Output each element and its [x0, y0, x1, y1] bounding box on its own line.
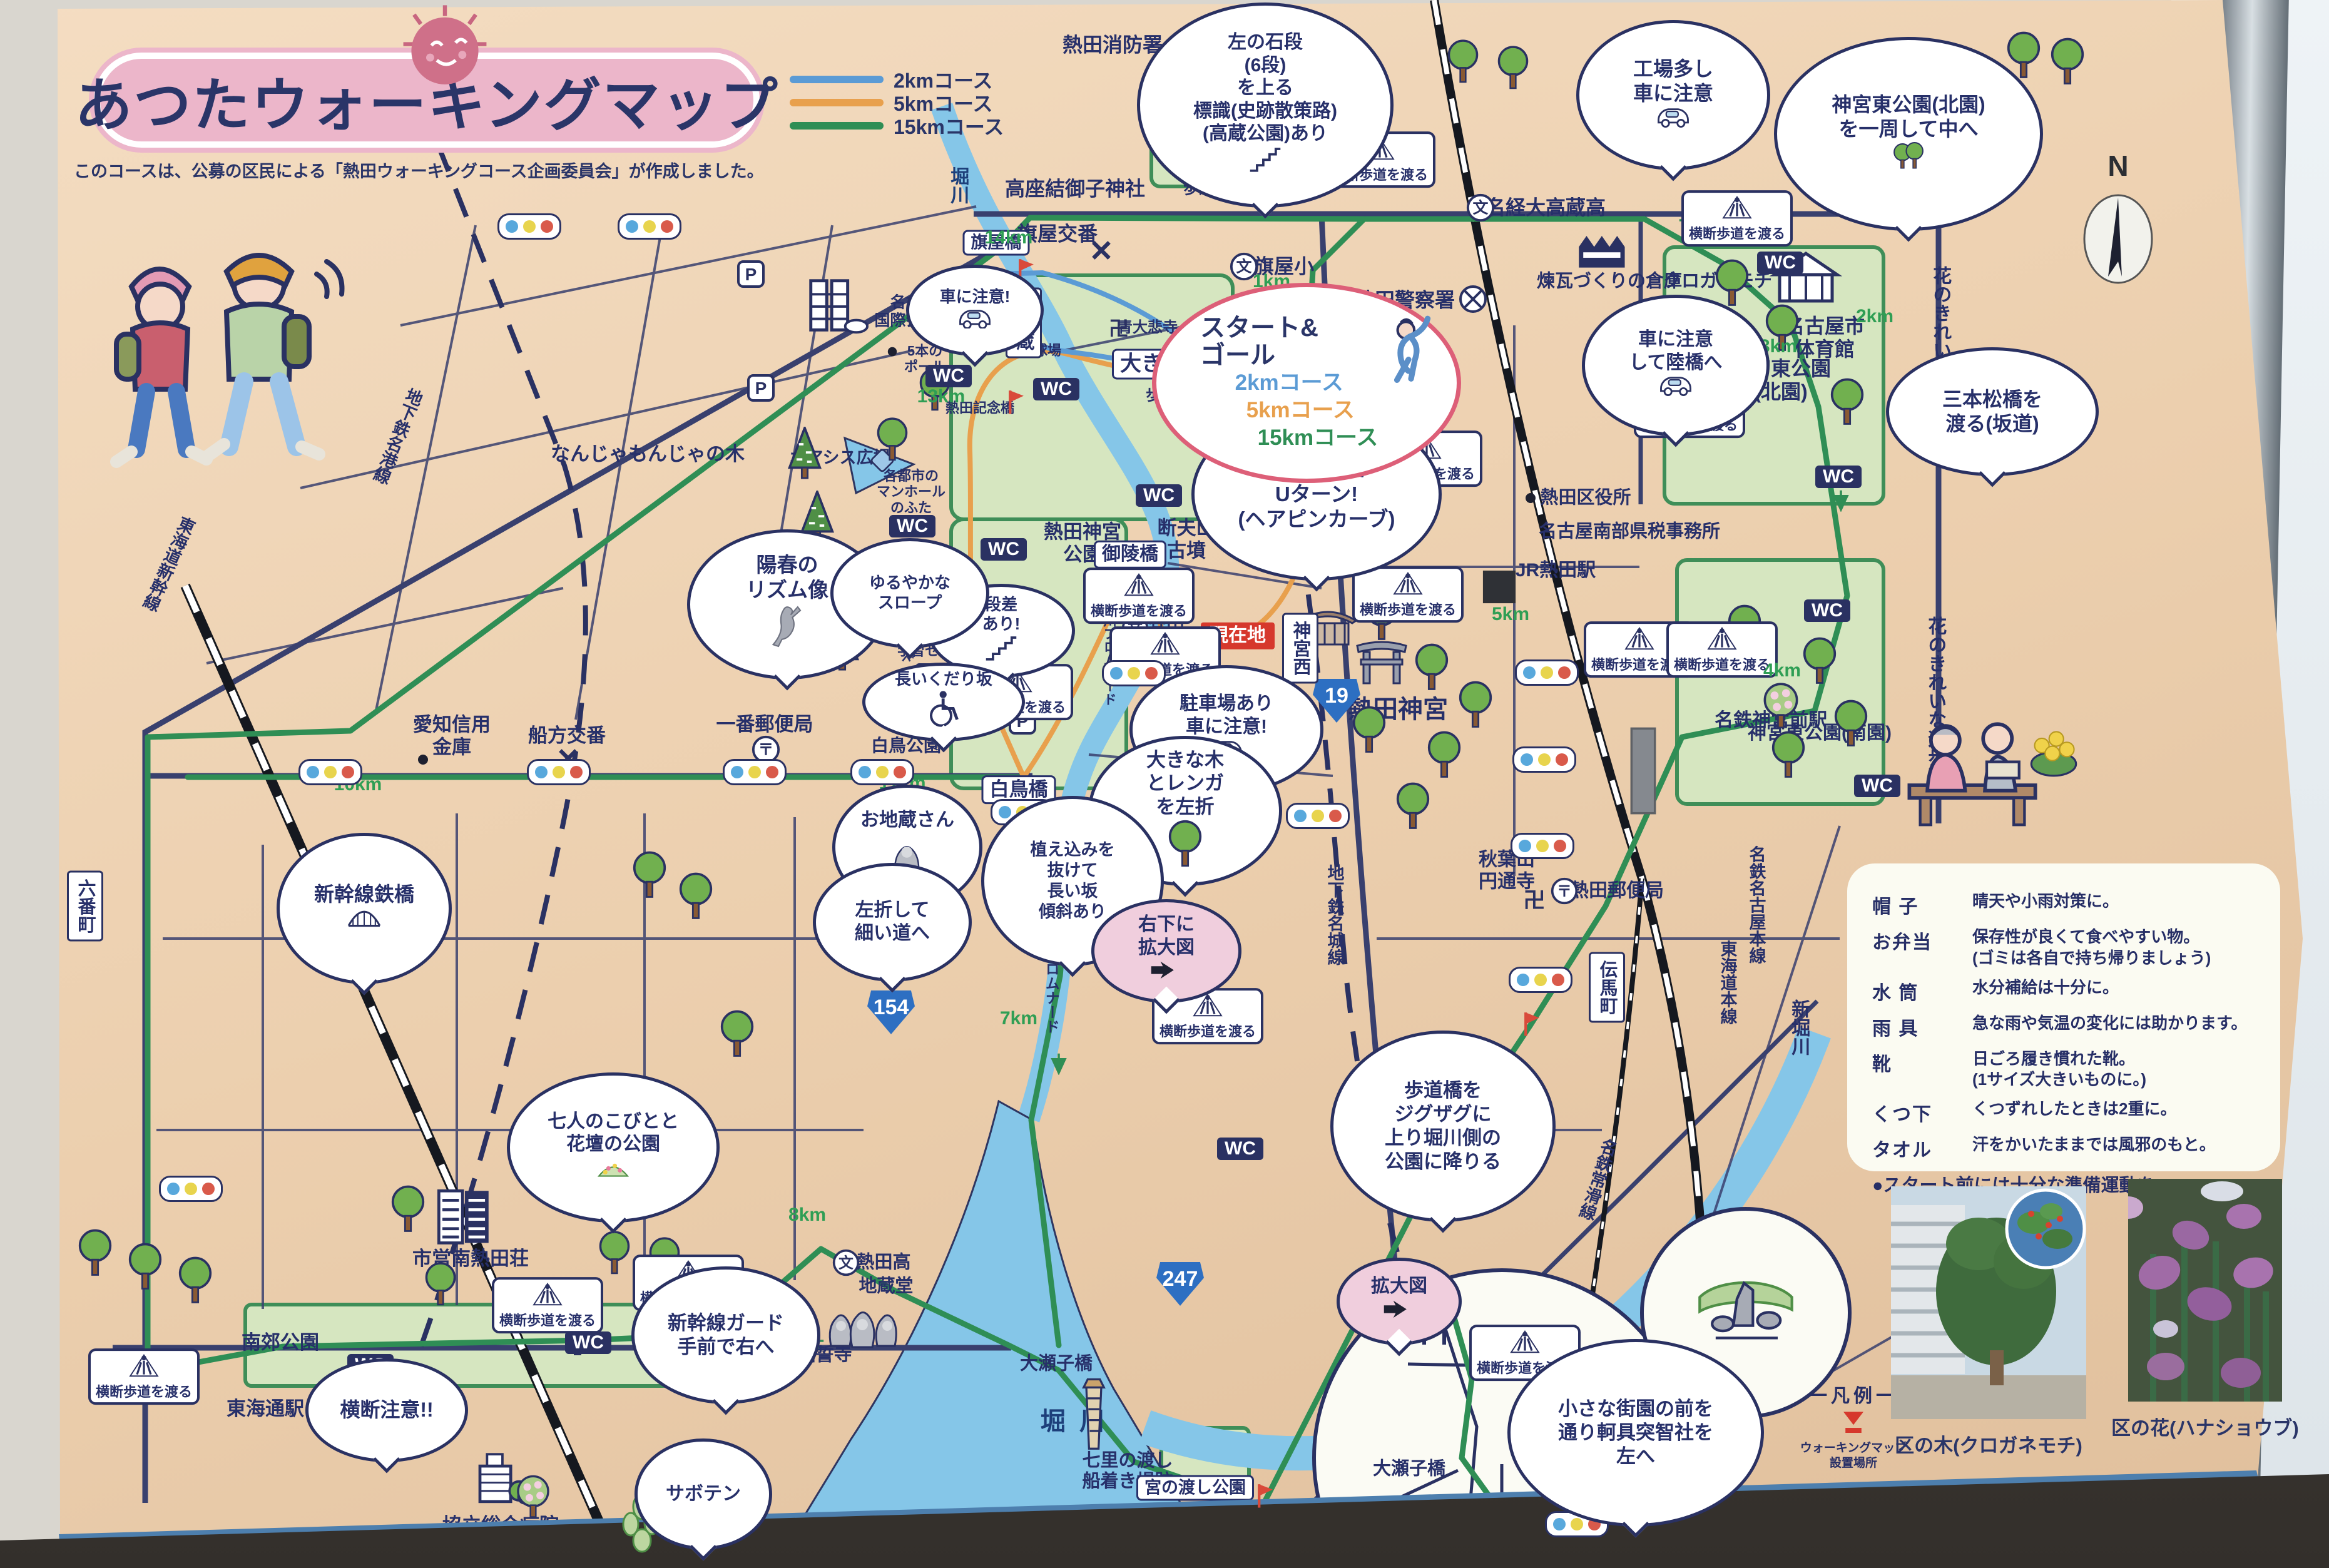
wc-badge: WC [1804, 599, 1850, 622]
crosswalk-icon [126, 1353, 162, 1381]
speech-bubble: 長いくだり坂 [862, 663, 1025, 741]
bubble-tail [879, 965, 906, 993]
bubble-tail [1059, 950, 1086, 977]
bubble-text: サボテン [666, 1483, 741, 1506]
svg-text:文: 文 [1473, 199, 1489, 217]
tip-term: 雨 具 [1872, 1013, 1972, 1041]
flag-icon [1006, 389, 1027, 415]
school-icon: 文 [1465, 193, 1496, 223]
svg-text:〒: 〒 [1557, 883, 1572, 900]
place-label: 名古屋南部県税事務所 [1539, 521, 1720, 542]
crosswalk-icon [1719, 195, 1755, 223]
bubble-text: 歩道橋を ジグザグに 上り堀川側の 公園に降りる [1385, 1079, 1501, 1173]
tower-icon [1070, 1378, 1118, 1452]
bubble-text: 右下に 拡大図 [1138, 914, 1195, 959]
tree-icon [1771, 730, 1806, 779]
place-label: 御陵橋 [1094, 541, 1166, 569]
place-label: 名経大高蔵高 [1486, 196, 1606, 220]
place-label: 高座結御子神社 [1005, 178, 1145, 201]
bubble-text: 車に注意 して陸橋へ [1629, 328, 1722, 374]
tip-row: 帽 子晴天や小雨対策に。 [1872, 891, 2255, 919]
tree-icon [78, 1228, 113, 1277]
traffic-light-icon [527, 759, 591, 785]
place-label: 一番郵便局 [716, 713, 813, 736]
speech-bubble: 神宮東公園(北園) を一周して中へ [1774, 37, 2043, 231]
bubble-tail [712, 1388, 740, 1415]
manji-icon: 卍 [1521, 886, 1548, 914]
flowerbed-icon [596, 1156, 631, 1184]
place-label: 煉瓦づくりの倉庫 [1537, 271, 1682, 292]
km-marker: 2km [1856, 306, 1893, 327]
tree-icon [2050, 37, 2085, 86]
tip-desc: 保存性が良くて食べやすい物。 (ゴミは各自で持ち帰りましょう) [1972, 927, 2255, 969]
bubble-text: 左折して 細い道へ [855, 899, 930, 945]
tree-icon [1427, 730, 1462, 779]
crossing-sign-text: 横断歩道を渡る [1689, 223, 1785, 243]
platform-icon [1630, 727, 1656, 815]
km-marker: 4km [1763, 660, 1801, 681]
tree-icon [720, 1009, 755, 1058]
crossing-sign-text: 横断歩道を渡る [96, 1381, 192, 1401]
bubble-text: 神宮東公園(北園) を一周して中へ [1832, 93, 1985, 141]
conference-icon [802, 276, 870, 335]
road-sign: 六番町 [67, 871, 103, 942]
bubble-tail [1979, 460, 2006, 487]
svg-text:〒: 〒 [758, 741, 774, 759]
speech-bubble: 横断注意!! [305, 1358, 468, 1462]
speech-bubble: 歩道橋を ジグザグに 上り堀川側の 公園に降りる [1330, 1031, 1556, 1222]
start-goal-course: 2kmコース [1235, 369, 1379, 397]
place-label: 各都市の マンホール のふた [877, 468, 945, 516]
crosswalk-icon [1507, 1330, 1543, 1357]
school-icon: 文 [832, 1248, 860, 1277]
tip-desc: 水分補給は十分に。 [1972, 977, 2255, 1005]
tip-desc: 汗をかいたままでは風邪のもと。 [1972, 1134, 2255, 1162]
bubble-text: ゆるやかな スロープ [869, 573, 950, 613]
walkers-illustration [94, 206, 357, 497]
crossing-sign-text: 横断歩道を渡る [499, 1310, 596, 1330]
speech-bubble: 七人のこびとと 花壇の公園 [507, 1072, 720, 1223]
station-icon [1481, 569, 1517, 605]
crossing-sign: 横断歩道を渡る [492, 1277, 603, 1333]
tip-term: 帽 子 [1872, 891, 1972, 919]
flag-icon [1521, 1011, 1542, 1037]
tree-icon [390, 1184, 426, 1233]
bubble-tail [373, 1446, 400, 1474]
bubble-text: 植え込みを 抜けて 長い坂 傾斜あり [1031, 840, 1115, 922]
crossing-sign: 横断歩道を渡る [1352, 566, 1464, 623]
arrow-icon [1051, 1052, 1068, 1075]
bubble-tail [350, 968, 378, 995]
stone-icon [1693, 1265, 1799, 1345]
traffic-light-icon [298, 759, 362, 785]
bubble-tail [773, 663, 801, 691]
traffic-light-icon [850, 759, 914, 785]
wc-badge: WC [1136, 484, 1182, 507]
traffic-light-icon [1509, 967, 1572, 993]
place-label: 熱田消防署 [1063, 34, 1163, 57]
bubble-text: 駐車場あり 車に注意! [1180, 693, 1273, 738]
bubble-text: 左の石段 (6段) を上る 標識(史跡散策路) (高蔵公園)あり [1193, 31, 1337, 146]
district-tree-caption: 区の木(クロガネモチ) [1891, 1430, 2086, 1458]
traffic-light-icon [618, 213, 681, 240]
km-marker: 13km [917, 386, 966, 407]
dot-icon [417, 753, 429, 766]
compass-rose: N [2077, 149, 2159, 292]
place-label: 愛知信用 金庫 [413, 713, 491, 758]
tree-icon [424, 1261, 457, 1307]
tip-term: お弁当 [1872, 927, 1972, 969]
bubble-text: 新幹線ガード 手前で右へ [668, 1311, 784, 1359]
traffic-light-icon [1286, 803, 1350, 829]
speech-bubble: 小さな街園の前を 通り軻具突智社を 左へ [1507, 1339, 1764, 1527]
police-icon [1457, 283, 1489, 315]
traffic-light-icon [1512, 746, 1576, 773]
wc-badge: WC [925, 365, 972, 387]
car-icon [1656, 106, 1691, 133]
tip-term: 水 筒 [1872, 977, 1972, 1005]
traffic-light-icon [1102, 660, 1166, 686]
place-label: 熱田郵便局 [1570, 880, 1664, 902]
sakura-icon [514, 1474, 552, 1519]
couple-icon [1900, 708, 2044, 833]
tree-icon [1447, 39, 1479, 84]
bubble-text: 三本松橋を 渡る(坂道) [1942, 387, 2042, 436]
crossing-sign-text: 横断歩道を渡る [1091, 600, 1187, 620]
xmark-icon [1090, 239, 1113, 262]
place-label: 東海道本線 [1717, 940, 1736, 1025]
place-label: 熱田高 [856, 1252, 910, 1273]
car-icon [1658, 374, 1693, 402]
bubble-tail [1895, 215, 1922, 242]
place-label: なんじゃもんじゃの木 [551, 443, 745, 466]
place-label: JR熱田駅 [1516, 560, 1596, 582]
crossing-sign: 横断歩道を渡る [1681, 190, 1793, 247]
start-goal-title: スタート& ゴール [1200, 314, 1318, 369]
place-label: 名鉄名古屋本線 [1746, 846, 1765, 964]
sakura-icon [1761, 682, 1801, 730]
speech-bubble: 新幹線鉄橋 [277, 833, 452, 984]
place-label: 大瀬子橋 [1373, 1459, 1445, 1479]
crosswalk-icon [1621, 626, 1658, 654]
yflower-icon [2027, 726, 2080, 778]
housing-icon [432, 1183, 497, 1248]
tree-icon [128, 1242, 163, 1291]
traffic-light-icon [497, 213, 561, 240]
tree-icon [632, 850, 667, 899]
bridgeic-icon [347, 907, 382, 935]
place-label: 名鉄常滑線 [1574, 1136, 1619, 1222]
svg-text:文: 文 [1236, 258, 1252, 276]
svg-text:卍: 卍 [1109, 317, 1129, 340]
speech-bubble: 車に注意 して陸橋へ [1582, 295, 1770, 436]
tip-term: タオル [1872, 1134, 1972, 1162]
tree-icon [1458, 680, 1493, 729]
tip-row: タオル汗をかいたままでは風邪のもと。 [1872, 1134, 2255, 1162]
svg-text:文: 文 [838, 1254, 854, 1271]
wc-badge: WC [889, 515, 935, 537]
tip-desc: 晴天や小雨対策に。 [1972, 891, 2255, 919]
jizo3-icon [822, 1293, 897, 1350]
tip-row: 靴日ごろ履き慣れた靴。 (1サイズ大きいものに。) [1872, 1049, 2255, 1091]
crosswalk-icon [1121, 573, 1157, 600]
tree-icon [1414, 643, 1449, 691]
bubble-text: 拡大図 [1371, 1275, 1427, 1298]
bubble-text: 新幹線鉄橋 [314, 882, 414, 907]
route-shield: 247 [1156, 1262, 1204, 1306]
manji-icon: 卍 [1106, 315, 1131, 340]
speech-bubble: 新幹線ガード 手前で右へ [631, 1266, 820, 1404]
torii-icon [1353, 636, 1410, 686]
tip-desc: 急な雨や気温の変化には助かります。 [1972, 1013, 2255, 1041]
bubble-text: 大きな木 とレンガ を左折 [1146, 748, 1224, 819]
speech-bubble: ゆるやかな スロープ [830, 538, 989, 648]
speech-bubble: 三本松橋を 渡る(坂道) [1886, 347, 2099, 476]
flag-icon [1255, 1482, 1276, 1509]
place-label: 宮の渡し公園 [1136, 1475, 1254, 1500]
tip-row: お弁当保存性が良くて食べやすい物。 (ゴミは各自で持ち帰りましょう) [1872, 927, 2255, 969]
km-marker: 7km [1000, 1008, 1037, 1029]
crossing-sign-text: 横断歩道を渡る [1360, 599, 1456, 619]
wc-badge: WC [1815, 466, 1862, 488]
speech-bubble: 左の石段 (6段) を上る 標識(史跡散策路) (高蔵公園)あり [1137, 3, 1394, 208]
road-sign: 伝馬町 [1589, 952, 1625, 1023]
bubble-tail [1659, 154, 1687, 181]
tree-icon [1802, 636, 1837, 685]
tree-icon [598, 1230, 631, 1276]
pine-icon [787, 427, 822, 479]
road-sign: 神宮西 [1282, 613, 1318, 684]
place-label: 堀川 [947, 166, 969, 204]
tree-icon [1497, 45, 1529, 91]
tip-term: くつ下 [1872, 1099, 1972, 1126]
bubble-tail [1251, 191, 1279, 219]
tip-desc: くつずれしたときは2重に。 [1972, 1099, 2255, 1126]
bubble-text: 陽春の リズム像 [746, 552, 828, 603]
bubble-text: お地蔵さん [860, 809, 954, 832]
svg-text:卍: 卍 [1523, 888, 1545, 913]
place-label: 東海通駅 [227, 1398, 304, 1420]
traffic-light-icon [1511, 833, 1574, 859]
place-label: 大瀬子橋 [1020, 1353, 1093, 1374]
tree-icon [1830, 377, 1865, 426]
wc-badge: WC [1217, 1138, 1263, 1160]
compass-north-label: N [2077, 149, 2159, 183]
wc-badge: WC [1854, 775, 1900, 797]
speech-bubble: 工場多し 車に注意 [1576, 20, 1770, 170]
tip-row: 雨 具急な雨や気温の変化には助かります。 [1872, 1013, 2255, 1041]
hand-icon [1382, 1298, 1417, 1328]
tree-icon [1352, 705, 1387, 754]
warehouse-icon [1576, 227, 1636, 271]
crossing-sign: 横断歩道を渡る [1666, 621, 1778, 678]
route-shield: 154 [867, 990, 915, 1034]
speech-bubble: 拡大図 [1337, 1258, 1462, 1345]
km-marker: 14km [985, 227, 1033, 248]
wc-badge: WC [1033, 378, 1079, 400]
place-label: 東海道新幹線 [138, 513, 197, 614]
place-label: 地下鉄名港線 [369, 385, 424, 486]
svg-text:P: P [745, 265, 757, 284]
wc-badge: WC [565, 1331, 611, 1354]
bubble-tail [1662, 420, 1689, 447]
place-label: 新堀川 [1788, 999, 1810, 1056]
tree-icon [1168, 819, 1203, 873]
bubble-text: 小さな街園の前を 通り軻具突智社を 左へ [1558, 1397, 1713, 1468]
speech-bubble: 右下に 拡大図 [1091, 899, 1241, 1003]
bubble-tail [1429, 1206, 1457, 1233]
dot-icon [887, 346, 898, 357]
car-icon [957, 307, 992, 333]
tip-row: くつ下くつずれしたときは2重に。 [1872, 1099, 2255, 1126]
crosswalk-icon [1147, 631, 1183, 659]
km-marker: 8km [788, 1204, 826, 1226]
traffic-light-icon [159, 1176, 223, 1202]
start-goal-courses: 2kmコース5kmコース15kmコース [1235, 369, 1379, 451]
pbadge-icon: P [747, 374, 775, 402]
bubble-tail [1303, 564, 1330, 592]
start-goal-course: 5kmコース [1246, 397, 1379, 424]
bubble-text: 七人のこびとと 花壇の公園 [548, 1111, 679, 1156]
tree-icon [678, 872, 713, 920]
tip-term: 靴 [1872, 1049, 1972, 1091]
crossing-sign-text: 横断歩道を渡る [1674, 654, 1770, 674]
trees2-icon [1891, 141, 1926, 176]
wc-badge: WC [1757, 252, 1803, 274]
bubble-text: 工場多し 車に注意 [1633, 57, 1713, 106]
tree-icon [1833, 699, 1868, 748]
tip-row: 水 筒水分補給は十分に。 [1872, 977, 2255, 1005]
photo-scene: あつたウォーキングマップ このコースは、公募の区民による「熱田ウォーキングコース… [0, 0, 2329, 1568]
bubble-text: 横断注意!! [340, 1398, 433, 1422]
wc-badge: WC [981, 538, 1027, 561]
tree-icon [1715, 258, 1750, 307]
bubble-tail [961, 340, 989, 367]
pbadge-icon: P [737, 260, 765, 288]
preparation-tips-box: 帽 子晴天や小雨対策に。お弁当保存性が良くて食べやすい物。 (ゴミは各自で持ち帰… [1847, 863, 2280, 1171]
svg-text:P: P [755, 379, 767, 398]
speech-bubble: 左折して 細い道へ [813, 863, 972, 982]
crossing-sign-text: 横断歩道を渡る [1159, 1021, 1256, 1041]
post-icon: 〒 [1550, 877, 1579, 905]
start-goal-bubble: スタート& ゴール 2kmコース5kmコース15kmコース [1152, 283, 1461, 483]
crossing-sign: 横断歩道を渡る [1083, 568, 1195, 624]
bubble-text: 長いくだり坂 [895, 669, 992, 690]
crossing-sign: 横断歩道を渡る [88, 1348, 200, 1405]
crosswalk-icon [529, 1282, 566, 1310]
crosswalk-icon [1390, 571, 1426, 599]
tips-rows: 帽 子晴天や小雨対策に。お弁当保存性が良くて食べやすい物。 (ゴミは各自で持ち帰… [1872, 891, 2255, 1162]
arrow-icon [1833, 489, 1850, 512]
bubble-tail [1385, 1329, 1413, 1357]
crosswalk-icon [1704, 626, 1740, 654]
statue-icon [770, 603, 805, 656]
district-flower-photo: 区の花(ハナショウブ) [2111, 1179, 2299, 1440]
start-goal-course: 15kmコース [1258, 424, 1379, 452]
place-label: 船方交番 [528, 725, 606, 747]
place-label: 地下鉄名城線 [1324, 864, 1343, 965]
dot-icon [1524, 492, 1537, 504]
place-label: 熱田区役所 [1540, 487, 1631, 508]
hand-icon [1149, 959, 1184, 989]
steps-icon [1248, 146, 1283, 179]
district-flower-caption: 区の花(ハナショウブ) [2111, 1412, 2299, 1440]
stretching-man-icon [1382, 312, 1439, 392]
tree-icon [1395, 781, 1430, 830]
traffic-light-icon [723, 759, 787, 785]
tip-desc: 日ごろ履き慣れた靴。 (1サイズ大きいものに。) [1972, 1049, 2255, 1091]
traffic-light-icon [1515, 659, 1579, 686]
district-tree-photo: 区の木(クロガネモチ) [1891, 1186, 2086, 1458]
speech-bubble: サボテン [634, 1438, 772, 1550]
bubble-text: 車に注意! [940, 287, 1011, 307]
place-label: 南郊公園 [242, 1331, 319, 1354]
speech-bubble: 車に注意! [906, 265, 1044, 356]
tree-icon [876, 417, 909, 462]
km-marker: 5km [1492, 604, 1529, 625]
tree-icon [178, 1256, 213, 1305]
